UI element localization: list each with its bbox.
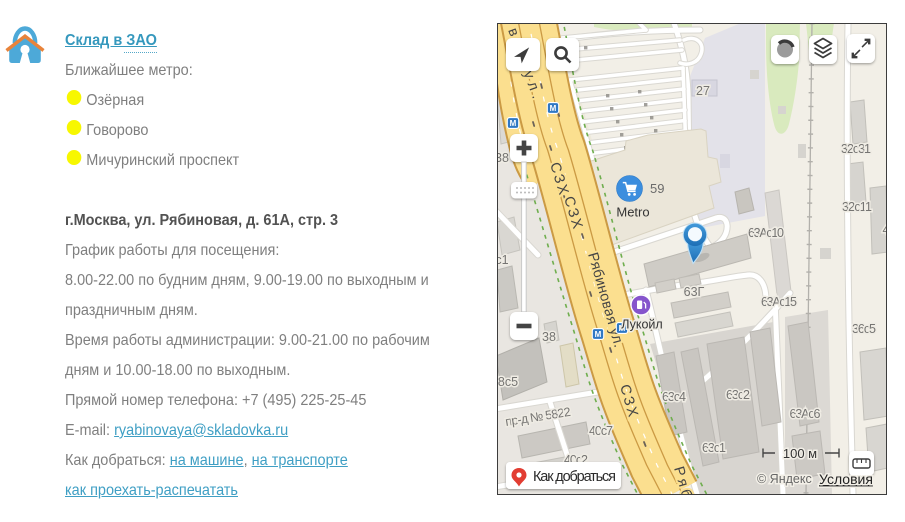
svg-text:63Ас10: 63Ас10 xyxy=(748,226,784,240)
svg-text:М: М xyxy=(550,104,557,113)
svg-text:32с11: 32с11 xyxy=(842,200,872,214)
svg-text:© Яндекс: © Яндекс xyxy=(757,472,812,486)
svg-text:63с1: 63с1 xyxy=(702,441,726,455)
svg-text:с1: с1 xyxy=(498,253,509,267)
svg-text:М: М xyxy=(510,119,517,128)
svg-text:Metro: Metro xyxy=(616,205,649,220)
svg-text:100 м: 100 м xyxy=(783,446,817,461)
svg-text:Условия: Условия xyxy=(819,471,873,487)
svg-text:27: 27 xyxy=(696,84,710,98)
svg-text:63Ас15: 63Ас15 xyxy=(761,295,797,309)
svg-text:40с7: 40с7 xyxy=(589,424,613,438)
svg-text:36с5: 36с5 xyxy=(852,322,876,336)
svg-text:63с2: 63с2 xyxy=(726,388,750,402)
svg-text:Лукойл: Лукойл xyxy=(621,318,662,332)
svg-text:38: 38 xyxy=(542,330,556,344)
svg-text:63Ас6: 63Ас6 xyxy=(790,407,821,421)
svg-text:М: М xyxy=(595,330,602,339)
svg-text:Как добраться: Как добраться xyxy=(533,469,616,485)
svg-text:59: 59 xyxy=(650,181,664,196)
svg-text:63с4: 63с4 xyxy=(662,390,686,404)
svg-text:32с31: 32с31 xyxy=(841,142,871,156)
svg-text:63Г: 63Г xyxy=(684,285,705,299)
svg-text:38: 38 xyxy=(498,151,509,165)
svg-text:8с5: 8с5 xyxy=(498,375,518,389)
svg-text:4: 4 xyxy=(883,223,886,237)
